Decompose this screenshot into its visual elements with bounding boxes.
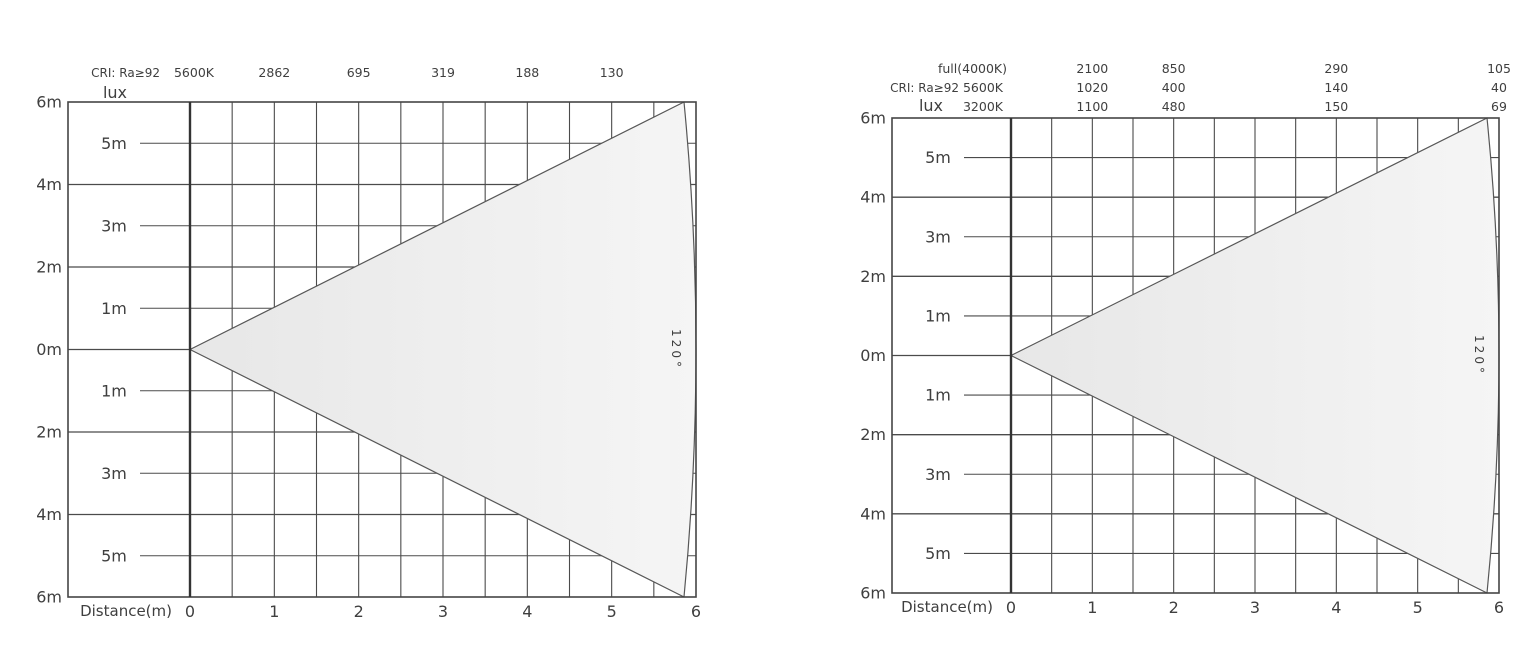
x-tick-label: 5 [607, 602, 617, 621]
x-tick-label: 0 [185, 602, 195, 621]
y-axis-outer-label: 4m [36, 505, 62, 524]
y-axis-outer-label: 2m [860, 425, 886, 444]
beam-chart-1: CRI: Ra≥925600K2862695319188130lux6m4m2m… [36, 65, 701, 621]
header-lux-value: 130 [600, 65, 624, 80]
y-axis-inner-label: 3m [101, 216, 127, 235]
y-axis-outer-label: 0m [860, 346, 886, 365]
y-axis-inner-label: 1m [101, 381, 127, 400]
header-lux-value: 2100 [1076, 61, 1108, 76]
header-lux-value: 69 [1491, 99, 1507, 114]
x-tick-label: 1 [269, 602, 279, 621]
beam-distribution-charts: CRI: Ra≥925600K2862695319188130lux6m4m2m… [0, 0, 1533, 651]
y-axis-outer-label: 2m [860, 267, 886, 286]
y-axis-outer-label: 6m [36, 588, 62, 607]
y-axis-outer-label: 0m [36, 340, 62, 359]
y-axis-inner-label: 3m [925, 465, 951, 484]
header-label: CRI: Ra≥92 [890, 81, 959, 95]
header-label: 5600K [174, 65, 215, 80]
y-axis-inner-label: 5m [925, 544, 951, 563]
header-lux-value: 40 [1491, 80, 1507, 95]
y-axis-outer-label: 6m [36, 93, 62, 112]
x-tick-label: 1 [1087, 598, 1097, 617]
y-axis-outer-label: 2m [36, 258, 62, 277]
x-tick-label: 0 [1006, 598, 1016, 617]
header-lux-value: 850 [1162, 61, 1186, 76]
y-axis-inner-label: 5m [101, 134, 127, 153]
y-axis-inner-label: 3m [925, 227, 951, 246]
header-lux-value: 2862 [258, 65, 290, 80]
x-axis-title: Distance(m) [80, 602, 172, 620]
header-lux-value: 1100 [1076, 99, 1108, 114]
header-lux-value: 695 [347, 65, 371, 80]
beam-angle-label: 120° [669, 329, 683, 370]
y-axis-outer-label: 4m [860, 504, 886, 523]
x-tick-label: 5 [1413, 598, 1423, 617]
y-axis-inner-label: 3m [101, 464, 127, 483]
header-lux-value: 319 [431, 65, 455, 80]
y-axis-outer-label: 4m [860, 188, 886, 207]
y-axis-outer-label: 4m [36, 175, 62, 194]
header-lux-value: 290 [1324, 61, 1348, 76]
y-axis-inner-label: 5m [925, 148, 951, 167]
header-lux-value: 480 [1162, 99, 1186, 114]
y-axis-outer-label: 6m [860, 109, 886, 128]
header-label: full(4000K) [938, 61, 1007, 76]
x-tick-label: 3 [438, 602, 448, 621]
header-lux-value: 400 [1162, 80, 1186, 95]
y-axis-outer-label: 2m [36, 423, 62, 442]
photometric-diagrams-page: CRI: Ra≥925600K2862695319188130lux6m4m2m… [0, 0, 1533, 651]
beam-angle-label: 120° [1472, 335, 1486, 376]
x-tick-label: 6 [691, 602, 701, 621]
header-label: 5600K [963, 80, 1004, 95]
header-label: lux [103, 83, 127, 102]
x-tick-label: 2 [354, 602, 364, 621]
beam-chart-2: full(4000K)2100850290105CRI: Ra≥925600K1… [860, 61, 1511, 617]
y-axis-outer-label: 6m [860, 584, 886, 603]
x-tick-label: 2 [1169, 598, 1179, 617]
x-tick-label: 4 [1331, 598, 1341, 617]
y-axis-inner-label: 1m [925, 306, 951, 325]
y-axis-inner-label: 1m [101, 299, 127, 318]
header-lux-value: 140 [1324, 80, 1348, 95]
header-label: lux [919, 96, 943, 115]
header-lux-value: 150 [1324, 99, 1348, 114]
x-tick-label: 3 [1250, 598, 1260, 617]
header-lux-value: 1020 [1076, 80, 1108, 95]
header-label: CRI: Ra≥92 [91, 66, 160, 80]
header-label: 3200K [963, 99, 1004, 114]
y-axis-inner-label: 1m [925, 386, 951, 405]
header-lux-value: 188 [515, 65, 539, 80]
y-axis-inner-label: 5m [101, 546, 127, 565]
x-tick-label: 4 [522, 602, 532, 621]
header-lux-value: 105 [1487, 61, 1511, 76]
x-axis-title: Distance(m) [901, 598, 993, 616]
x-tick-label: 6 [1494, 598, 1504, 617]
